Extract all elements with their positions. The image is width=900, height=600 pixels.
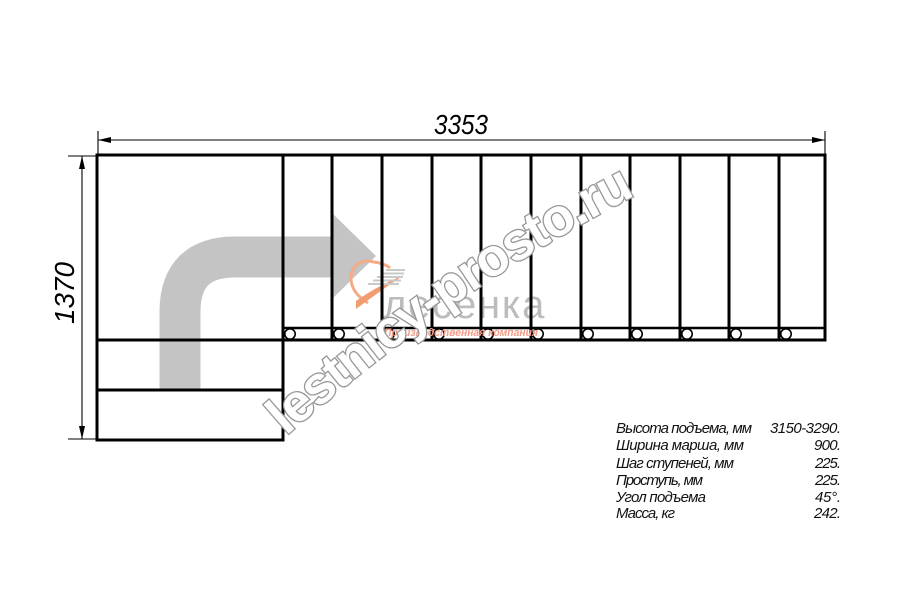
- svg-text:225.: 225.: [814, 472, 841, 489]
- svg-text:45°.: 45°.: [815, 489, 841, 506]
- svg-text:Шаг ступеней, мм: Шаг ступеней, мм: [616, 455, 734, 472]
- svg-text:1370: 1370: [49, 262, 80, 324]
- svg-text:Проступь, мм: Проступь, мм: [616, 472, 703, 489]
- svg-text:242.: 242.: [813, 505, 841, 522]
- svg-text:225.: 225.: [814, 455, 841, 472]
- svg-text:Ширина марша, мм: Ширина марша, мм: [616, 437, 744, 454]
- svg-text:Угол подъема: Угол подъема: [615, 489, 706, 506]
- svg-text:Высота подъема, мм: Высота подъема, мм: [616, 420, 752, 437]
- svg-text:3150-3290.: 3150-3290.: [770, 420, 841, 437]
- svg-text:900.: 900.: [814, 437, 841, 454]
- svg-text:3353: 3353: [434, 109, 488, 140]
- svg-text:Масса, кг: Масса, кг: [616, 505, 676, 522]
